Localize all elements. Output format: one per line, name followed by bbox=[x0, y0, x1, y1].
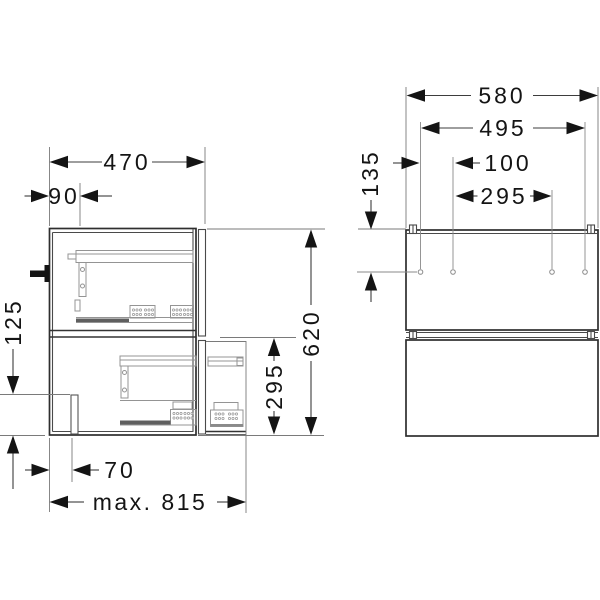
dim-foot-height: 125 bbox=[0, 298, 26, 489]
dim-back-offset: 90 bbox=[25, 183, 113, 209]
dim-hole-pitch-large: 295 bbox=[456, 183, 552, 209]
mounting-hole-3 bbox=[550, 270, 555, 275]
dim-hole-top-offset: 135 bbox=[357, 149, 383, 302]
adjustable-foot bbox=[71, 395, 78, 434]
cutaway-section bbox=[206, 342, 246, 436]
dim-hole-pitch-small: 100 bbox=[393, 150, 532, 176]
dim-label-580: 580 bbox=[478, 83, 525, 109]
lower-drawer-front-panel bbox=[199, 341, 206, 435]
dim-width-total: 580 bbox=[407, 83, 599, 109]
technical-drawing: 470 90 125 295 620 70 bbox=[0, 0, 600, 600]
dim-height-total: 620 bbox=[298, 230, 324, 436]
dim-label-max-815: max. 815 bbox=[93, 489, 208, 515]
technical-drawing-canvas: 470 90 125 295 620 70 bbox=[0, 0, 600, 600]
front-upper-drawer bbox=[406, 230, 598, 330]
dim-label-100: 100 bbox=[484, 150, 531, 176]
dim-label-125: 125 bbox=[0, 298, 26, 345]
front-lower-drawer bbox=[406, 340, 598, 436]
dim-width-max: max. 815 bbox=[50, 489, 247, 515]
dim-label-90: 90 bbox=[48, 183, 80, 209]
dim-depth-total: 470 bbox=[50, 149, 206, 175]
dim-label-295-front: 295 bbox=[480, 183, 527, 209]
dim-hole-span: 495 bbox=[421, 115, 585, 141]
mounting-hole-2 bbox=[451, 270, 456, 275]
dim-label-295-side: 295 bbox=[261, 362, 287, 409]
side-view bbox=[30, 229, 246, 436]
mounting-hole-1 bbox=[418, 270, 423, 275]
dim-label-620: 620 bbox=[298, 309, 324, 356]
wall-mount-bolt bbox=[30, 265, 50, 282]
dim-label-495: 495 bbox=[479, 115, 526, 141]
dim-foot-inset: 70 bbox=[25, 457, 136, 483]
mounting-hole-4 bbox=[583, 270, 588, 275]
upper-drawer-front-panel bbox=[199, 230, 206, 337]
front-view bbox=[357, 122, 598, 436]
dim-label-470: 470 bbox=[103, 149, 150, 175]
dim-drawer-height: 295 bbox=[261, 338, 287, 435]
dim-label-70: 70 bbox=[104, 457, 136, 483]
dim-label-135: 135 bbox=[357, 149, 383, 196]
